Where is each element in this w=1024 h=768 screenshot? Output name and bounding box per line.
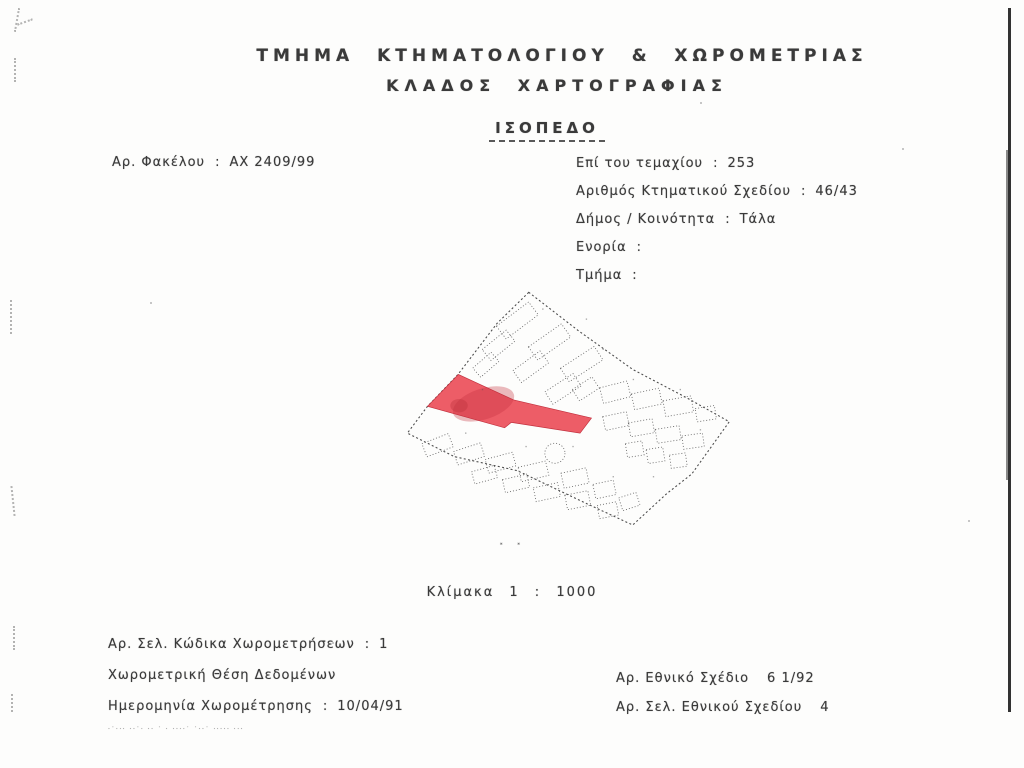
field-file-number-value: ΑΧ 2409/99 [229, 155, 315, 170]
scan-tick-marks: ˟ ˟ [499, 543, 526, 553]
field-national-plan-page-value: 4 [820, 700, 829, 715]
form-heading-wrap: ΙΣΟΠΕΔΟ [0, 118, 1024, 142]
parcel-lot [695, 406, 716, 422]
field-cadastral-plan: Αριθμός Κτηματικού Σχεδίου:46/43 [576, 184, 858, 200]
field-plot-number-label: Επί του τεμαχίου [576, 156, 703, 171]
parcel-lot [496, 302, 538, 339]
parcel-lot [625, 441, 644, 458]
field-parish-label: Ενορία [576, 240, 627, 255]
scan-noise-mark [14, 58, 16, 82]
field-section: Τμήμα: [576, 268, 858, 284]
parcel-lot [572, 377, 599, 401]
parcel-lot [646, 447, 665, 464]
field-survey-position-label: Χωρομετρική Θέση Δεδομένων [108, 668, 336, 683]
scan-speck [700, 102, 702, 104]
map-speck [680, 389, 681, 390]
map-speck [525, 446, 526, 447]
parcel-lot [528, 324, 570, 360]
field-national-plan-page-label: Αρ. Σελ. Εθνικού Σχεδίου [616, 700, 802, 715]
scan-speck [332, 642, 334, 644]
field-cadastral-plan-value: 46/43 [815, 184, 857, 199]
parcel-lot [518, 461, 549, 482]
field-survey-date-value: 10/04/91 [337, 699, 403, 714]
field-national-plan-value: 6 1/92 [767, 671, 815, 686]
highlighted-parcel-smudge [450, 399, 467, 412]
field-survey-code-page-value: 1 [379, 637, 388, 652]
parcel-lot [603, 412, 630, 431]
parcel-lot [533, 483, 560, 502]
scan-noise-mark [11, 694, 13, 712]
parcel-lot [561, 468, 589, 488]
field-national-plan-label: Αρ. Εθνικό Σχέδιο [616, 671, 749, 686]
field-survey-position: Χωρομετρική Θέση Δεδομένων [108, 668, 404, 684]
form-heading: ΙΣΟΠΕΔΟ [489, 119, 605, 142]
field-file-number: Αρ. Φακέλου:ΑΧ 2409/99 [112, 155, 315, 170]
field-national-plan-page: Αρ. Σελ. Εθνικού Σχεδίου4 [616, 700, 830, 716]
map-scale-label: Κλίμακα 1 : 1000 [0, 585, 1024, 600]
parcel-lot [471, 465, 497, 484]
parcel-lot [628, 419, 654, 437]
map-speck [613, 476, 614, 477]
national-plan-block: Αρ. Εθνικό Σχέδιο6 1/92 Αρ. Σελ. Εθνικού… [616, 671, 830, 729]
scan-edge-line [1008, 8, 1011, 712]
scan-speck [150, 302, 152, 304]
field-survey-code-page: Αρ. Σελ. Κώδικα Χωρομετρήσεων:1 [108, 637, 404, 653]
map-speck [633, 379, 634, 380]
field-survey-code-page-label: Αρ. Σελ. Κώδικα Χωρομετρήσεων [108, 637, 355, 652]
parcel-lot [593, 480, 616, 499]
map-speck [482, 389, 483, 390]
cadastral-map [398, 286, 740, 532]
scan-speck [968, 520, 970, 522]
field-municipality-value: Τάλα [740, 212, 777, 227]
parcel-lot-round [545, 443, 565, 463]
map-speck [603, 349, 604, 350]
field-file-number-label: Αρ. Φακέλου [112, 155, 205, 170]
parcel-lot [682, 433, 704, 449]
scan-noise-mark [10, 486, 15, 516]
illegible-microprint: ·˙··· ··˙· ·· ˙ · ····˙ ˙··˙ ····· ··· [108, 726, 244, 733]
parcel-lot [655, 426, 681, 444]
parcel-lot [454, 443, 485, 465]
parcel-lot [560, 346, 603, 381]
scan-edge-line-shadow [1006, 150, 1008, 480]
map-speck [653, 476, 654, 477]
parcel-lot [669, 453, 687, 469]
parcel-details-block: Επί του τεμαχίου:253 Αριθμός Κτηματικού … [576, 156, 858, 296]
department-title: ΤΜΗΜΑ ΚΤΗΜΑΤΟΛΟΓΙΟΥ & ΧΩΡΟΜΕΤΡΙΑΣ [0, 46, 1024, 66]
map-speck [542, 308, 543, 309]
scanned-cadastral-document: ΤΜΗΜΑ ΚΤΗΜΑΤΟΛΟΓΙΟΥ & ΧΩΡΟΜΕΤΡΙΑΣ ΚΛΑΔΟΣ… [0, 0, 1024, 768]
parcel-lot [473, 352, 499, 377]
scan-noise-mark [13, 626, 15, 650]
field-parish: Ενορία: [576, 240, 858, 256]
scan-noise-mark [10, 300, 12, 334]
map-speck [572, 446, 573, 447]
field-national-plan: Αρ. Εθνικό Σχέδιο6 1/92 [616, 671, 830, 687]
field-survey-date: Ημερομηνία Χωρομέτρησης:10/04/91 [108, 699, 404, 715]
field-plot-number-value: 253 [727, 156, 755, 171]
field-cadastral-plan-label: Αριθμός Κτηματικού Σχεδίου [576, 184, 791, 199]
parcel-lot [631, 388, 662, 410]
field-municipality-label: Δήμος / Κοινότητα [576, 212, 715, 227]
survey-info-block: Αρ. Σελ. Κώδικα Χωρομετρήσεων:1 Χωρομετρ… [108, 637, 404, 730]
branch-title: ΚΛΑΔΟΣ ΧΑΡΤΟΓΡΑΦΙΑΣ [0, 76, 1024, 95]
field-survey-date-label: Ημερομηνία Χωρομέτρησης [108, 699, 313, 714]
map-speck [465, 432, 466, 433]
parcel-lot [597, 502, 619, 519]
map-speck [700, 429, 701, 430]
parcel-lot [513, 351, 549, 383]
scan-speck [902, 148, 904, 150]
parcel-lot [600, 381, 631, 403]
field-municipality: Δήμος / Κοινότητα:Τάλα [576, 212, 858, 228]
field-section-label: Τμήμα [576, 268, 622, 283]
scan-noise-mark [14, 8, 20, 32]
parcel-lot [565, 491, 591, 510]
map-speck [586, 318, 587, 319]
parcel-lot [545, 374, 581, 405]
parcel-lot [485, 452, 516, 473]
parcel-lot [502, 474, 529, 493]
field-plot-number: Επί του τεμαχίου:253 [576, 156, 858, 172]
parcel-lot [619, 492, 640, 510]
scan-noise-mark [17, 18, 33, 25]
